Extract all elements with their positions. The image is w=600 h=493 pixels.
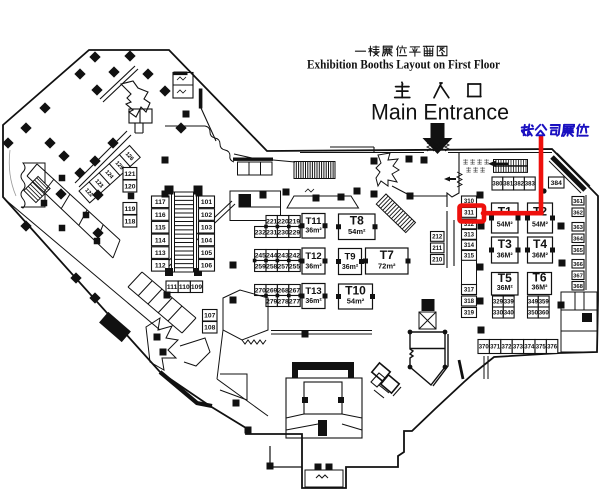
svg-text:350: 350 [528, 311, 539, 317]
svg-text:36m²: 36m² [305, 298, 322, 305]
svg-text:375: 375 [536, 345, 547, 351]
svg-text:T8: T8 [350, 214, 364, 228]
svg-text:255: 255 [289, 263, 300, 270]
svg-text:114: 114 [155, 237, 166, 244]
svg-text:267: 267 [289, 287, 300, 294]
svg-text:319: 319 [464, 310, 475, 317]
svg-text:277: 277 [289, 298, 300, 305]
svg-text:221: 221 [266, 218, 277, 225]
svg-text:36m²: 36m² [305, 263, 322, 270]
svg-text:211: 211 [432, 245, 442, 252]
svg-text:370: 370 [479, 345, 490, 351]
svg-text:371: 371 [490, 345, 501, 351]
svg-text:242: 242 [289, 252, 300, 259]
svg-text:T13: T13 [305, 286, 321, 297]
svg-text:349: 349 [528, 300, 539, 306]
svg-text:365: 365 [573, 248, 584, 254]
svg-text:121: 121 [124, 171, 135, 178]
svg-text:313: 313 [464, 232, 475, 239]
svg-text:384: 384 [551, 180, 562, 187]
svg-text:366: 366 [573, 262, 584, 268]
svg-text:109: 109 [191, 284, 202, 291]
svg-text:383: 383 [525, 182, 536, 188]
svg-text:113: 113 [155, 250, 166, 257]
svg-text:116: 116 [155, 212, 166, 219]
svg-text:362: 362 [573, 210, 584, 216]
svg-text:373: 373 [513, 345, 524, 351]
svg-text:107: 107 [204, 313, 215, 320]
svg-text:364: 364 [573, 236, 584, 242]
svg-text:257: 257 [278, 263, 289, 270]
svg-text:314: 314 [464, 242, 475, 249]
svg-text:106: 106 [201, 263, 212, 270]
svg-text:72m²: 72m² [378, 261, 396, 270]
svg-text:258: 258 [266, 263, 277, 270]
svg-text:318: 318 [464, 298, 475, 305]
svg-text:372: 372 [501, 345, 512, 351]
svg-text:117: 117 [155, 199, 166, 206]
svg-text:381: 381 [503, 182, 514, 188]
svg-text:111: 111 [167, 284, 178, 291]
svg-text:382: 382 [514, 182, 525, 188]
svg-text:311: 311 [464, 210, 474, 217]
svg-text:269: 269 [266, 287, 277, 294]
svg-text:T5: T5 [498, 271, 512, 285]
svg-text:112: 112 [155, 263, 166, 270]
svg-text:Main Entrance: Main Entrance [371, 100, 509, 125]
svg-text:36M²: 36M² [532, 285, 549, 292]
svg-text:101: 101 [201, 199, 212, 206]
svg-text:359: 359 [539, 300, 550, 306]
svg-text:T4: T4 [533, 237, 547, 251]
svg-text:330: 330 [493, 311, 504, 317]
svg-text:T3: T3 [498, 237, 512, 251]
svg-text:120: 120 [124, 183, 135, 190]
svg-text:230: 230 [278, 229, 289, 236]
svg-text:244: 244 [266, 252, 277, 259]
svg-text:231: 231 [266, 229, 277, 236]
svg-text:270: 270 [255, 287, 266, 294]
svg-text:102: 102 [201, 212, 212, 219]
svg-text:368: 368 [573, 284, 584, 290]
svg-text:315: 315 [464, 253, 475, 260]
svg-text:36M²: 36M² [497, 252, 514, 259]
svg-text:104: 104 [201, 237, 212, 244]
svg-text:119: 119 [125, 206, 136, 213]
svg-text:340: 340 [504, 311, 515, 317]
svg-text:T7: T7 [380, 248, 394, 262]
svg-text:T6: T6 [532, 271, 546, 285]
svg-text:210: 210 [432, 257, 443, 264]
svg-text:118: 118 [125, 218, 136, 225]
svg-text:108: 108 [204, 325, 215, 332]
svg-text:T9: T9 [344, 251, 355, 262]
svg-text:54M²: 54M² [532, 221, 549, 228]
svg-text:329: 329 [493, 300, 504, 306]
svg-text:115: 115 [155, 225, 166, 232]
svg-text:212: 212 [432, 234, 443, 241]
svg-text:36m²: 36m² [305, 228, 322, 235]
svg-text:103: 103 [201, 225, 212, 232]
svg-text:339: 339 [504, 300, 515, 306]
svg-text:361: 361 [573, 199, 584, 205]
svg-text:229: 229 [289, 229, 300, 236]
svg-text:376: 376 [547, 345, 558, 351]
svg-text:219: 219 [289, 218, 300, 225]
svg-text:T11: T11 [306, 216, 323, 227]
svg-text:105: 105 [201, 250, 212, 257]
svg-text:36M²: 36M² [532, 252, 549, 259]
svg-text:54M²: 54M² [497, 221, 514, 228]
svg-text:317: 317 [464, 287, 475, 294]
svg-text:232: 232 [255, 229, 266, 236]
svg-text:259: 259 [255, 263, 266, 270]
svg-text:363: 363 [573, 225, 584, 231]
svg-text:243: 243 [278, 252, 289, 259]
svg-text:36M²: 36M² [497, 285, 514, 292]
svg-text:54m²: 54m² [348, 227, 366, 236]
svg-text:268: 268 [278, 287, 289, 294]
svg-text:278: 278 [278, 298, 289, 305]
svg-text:Exhibition Booths Layout on Fi: Exhibition Booths Layout on First Floor [307, 58, 500, 72]
svg-text:T12: T12 [305, 251, 321, 262]
svg-text:36m²: 36m² [342, 264, 359, 271]
svg-text:54m²: 54m² [347, 297, 365, 306]
svg-text:374: 374 [524, 345, 535, 351]
svg-text:T10: T10 [345, 284, 366, 298]
svg-text:380: 380 [492, 182, 503, 188]
svg-text:245: 245 [255, 252, 266, 259]
svg-text:220: 220 [278, 218, 289, 225]
svg-text:360: 360 [539, 311, 550, 317]
svg-text:367: 367 [573, 273, 584, 279]
svg-text:110: 110 [179, 284, 190, 291]
